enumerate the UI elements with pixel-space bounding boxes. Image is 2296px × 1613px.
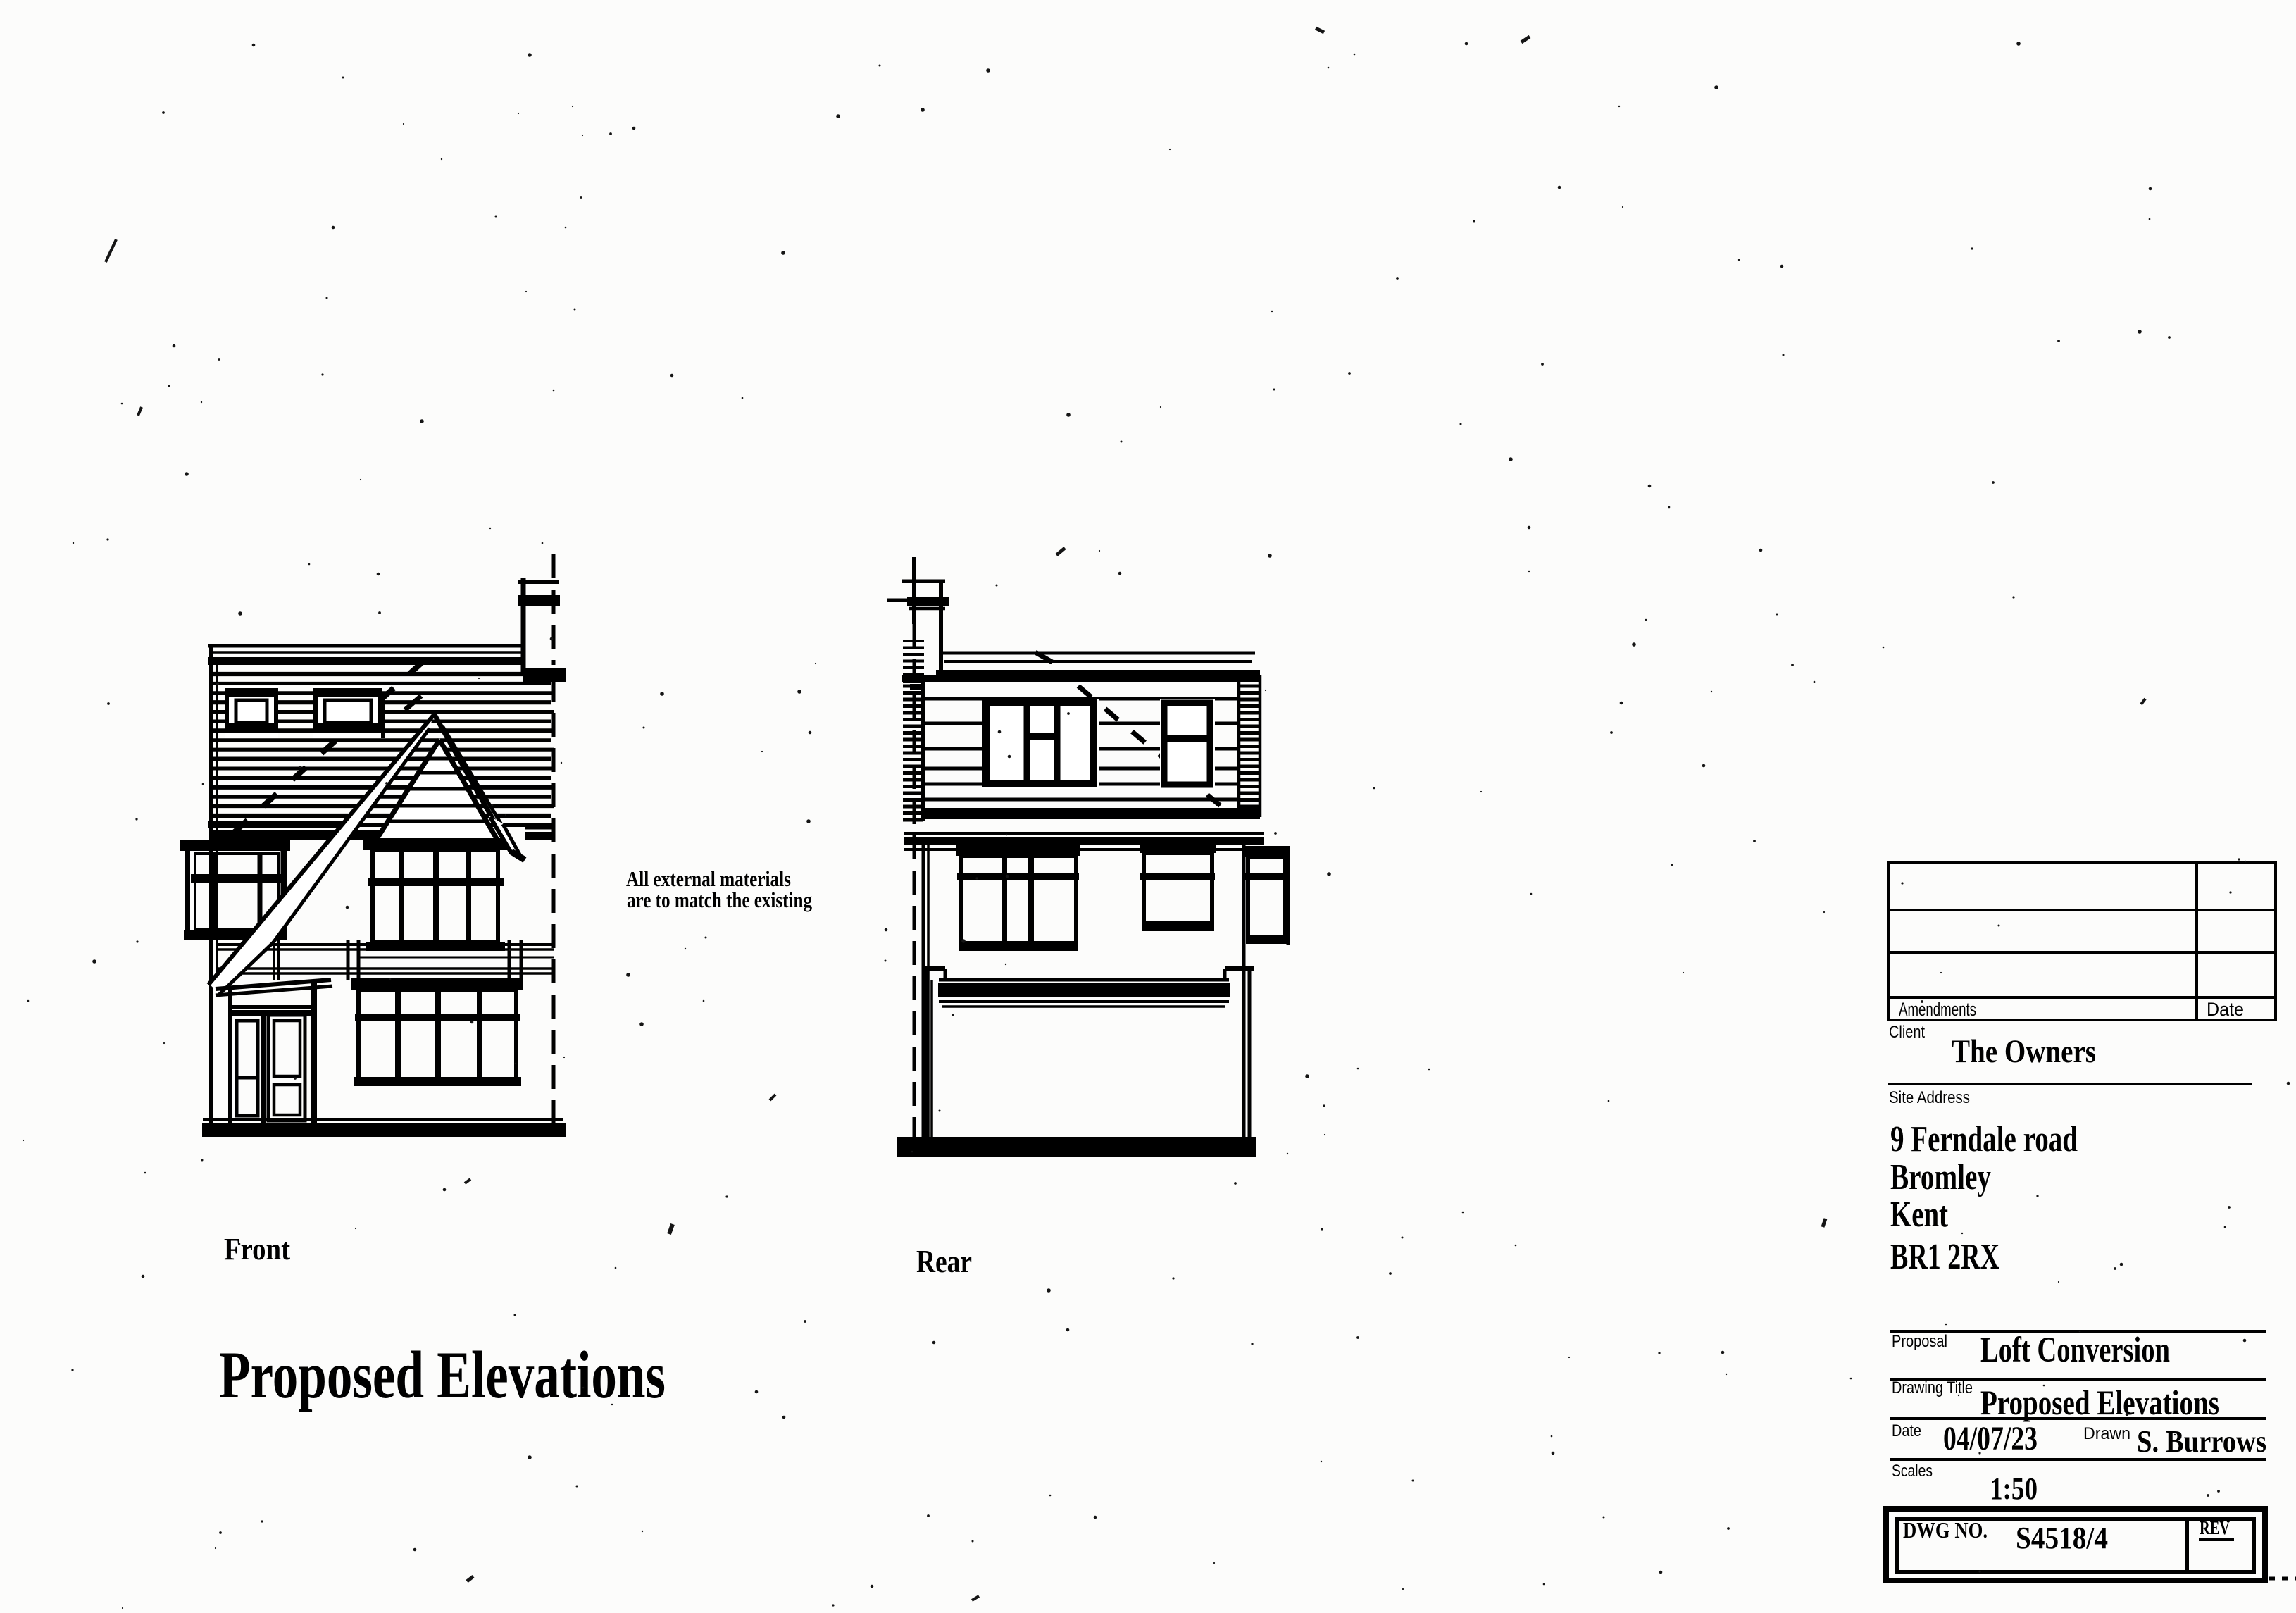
svg-text:Proposal: Proposal <box>1892 1332 1947 1351</box>
svg-text:BR1 2RX: BR1 2RX <box>1890 1237 1999 1277</box>
svg-text:1:50: 1:50 <box>1990 1471 2038 1506</box>
svg-text:Site Address: Site Address <box>1889 1088 1970 1107</box>
svg-text:04/07/23: 04/07/23 <box>1943 1420 2038 1457</box>
svg-text:Amendments: Amendments <box>1899 999 1976 1020</box>
svg-text:Scales: Scales <box>1892 1462 1933 1481</box>
svg-text:The Owners: The Owners <box>1952 1033 2096 1070</box>
svg-text:S4518/4: S4518/4 <box>2016 1521 2108 1555</box>
svg-text:S. Burrows: S. Burrows <box>2137 1424 2266 1459</box>
svg-text:Rear: Rear <box>916 1244 972 1279</box>
svg-text:Client: Client <box>1889 1023 1925 1042</box>
svg-text:Date: Date <box>1892 1421 1921 1440</box>
svg-text:DWG NO.: DWG NO. <box>1903 1517 1988 1543</box>
svg-text:Drawing Title: Drawing Title <box>1892 1378 1973 1397</box>
svg-text:Front: Front <box>224 1232 290 1266</box>
svg-text:Proposed Elevations: Proposed Elevations <box>219 1338 666 1412</box>
svg-text:Proposed Elevations: Proposed Elevations <box>1980 1383 2219 1422</box>
svg-text:are to match the existing: are to match the existing <box>627 888 812 912</box>
svg-text:Kent: Kent <box>1890 1195 1949 1235</box>
svg-text:Drawn: Drawn <box>2083 1424 2130 1443</box>
svg-text:Loft Conversion: Loft Conversion <box>1980 1331 2170 1370</box>
svg-text:REV: REV <box>2200 1517 2230 1538</box>
svg-text:9 Ferndale road: 9 Ferndale road <box>1890 1119 2078 1159</box>
svg-text:Date: Date <box>2207 999 2244 1020</box>
svg-text:Bromley: Bromley <box>1890 1157 1991 1197</box>
